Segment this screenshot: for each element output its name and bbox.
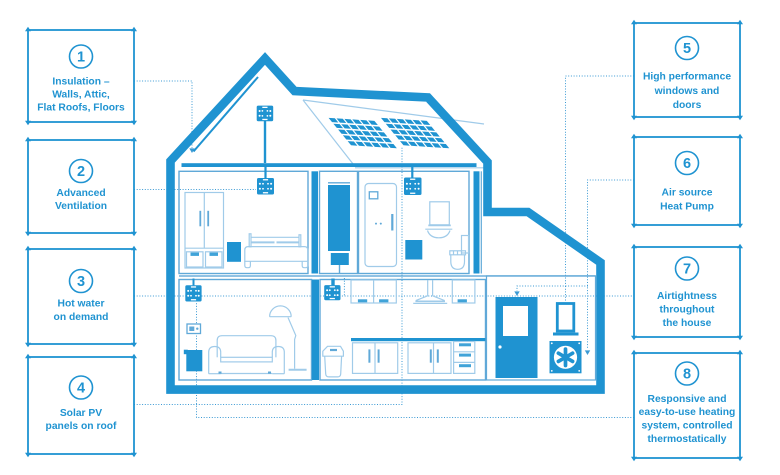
svg-text:7: 7 — [683, 262, 691, 278]
svg-text:Advanced: Advanced — [56, 188, 105, 199]
svg-text:panels on roof: panels on roof — [46, 421, 118, 432]
svg-text:4: 4 — [77, 381, 85, 397]
svg-text:2: 2 — [77, 164, 85, 180]
svg-text:thermostatically: thermostatically — [648, 434, 727, 445]
svg-text:8: 8 — [683, 367, 691, 383]
svg-text:6: 6 — [683, 156, 691, 172]
svg-text:Airtightness: Airtightness — [657, 291, 717, 302]
svg-text:windows and: windows and — [654, 86, 720, 97]
svg-text:Hot water: Hot water — [58, 299, 105, 310]
svg-text:Heat Pump: Heat Pump — [660, 202, 714, 213]
svg-text:Flat Roofs, Floors: Flat Roofs, Floors — [37, 103, 125, 114]
svg-text:easy-to-use heating: easy-to-use heating — [639, 407, 736, 418]
svg-text:Walls, Attic,: Walls, Attic, — [52, 90, 110, 101]
svg-text:High performance: High performance — [643, 71, 731, 82]
svg-text:throughout: throughout — [660, 305, 715, 316]
svg-text:1: 1 — [77, 50, 85, 66]
svg-text:Air source: Air source — [662, 187, 713, 198]
svg-text:the house: the house — [663, 318, 712, 329]
svg-text:system, controlled: system, controlled — [642, 421, 733, 432]
svg-text:3: 3 — [77, 274, 85, 290]
svg-text:doors: doors — [673, 100, 702, 111]
svg-text:Ventilation: Ventilation — [55, 201, 107, 212]
svg-text:Insulation –: Insulation – — [52, 77, 109, 88]
svg-text:on demand: on demand — [54, 312, 109, 323]
svg-text:5: 5 — [683, 41, 691, 57]
svg-text:Responsive and: Responsive and — [648, 394, 727, 405]
svg-text:Solar PV: Solar PV — [60, 408, 102, 419]
